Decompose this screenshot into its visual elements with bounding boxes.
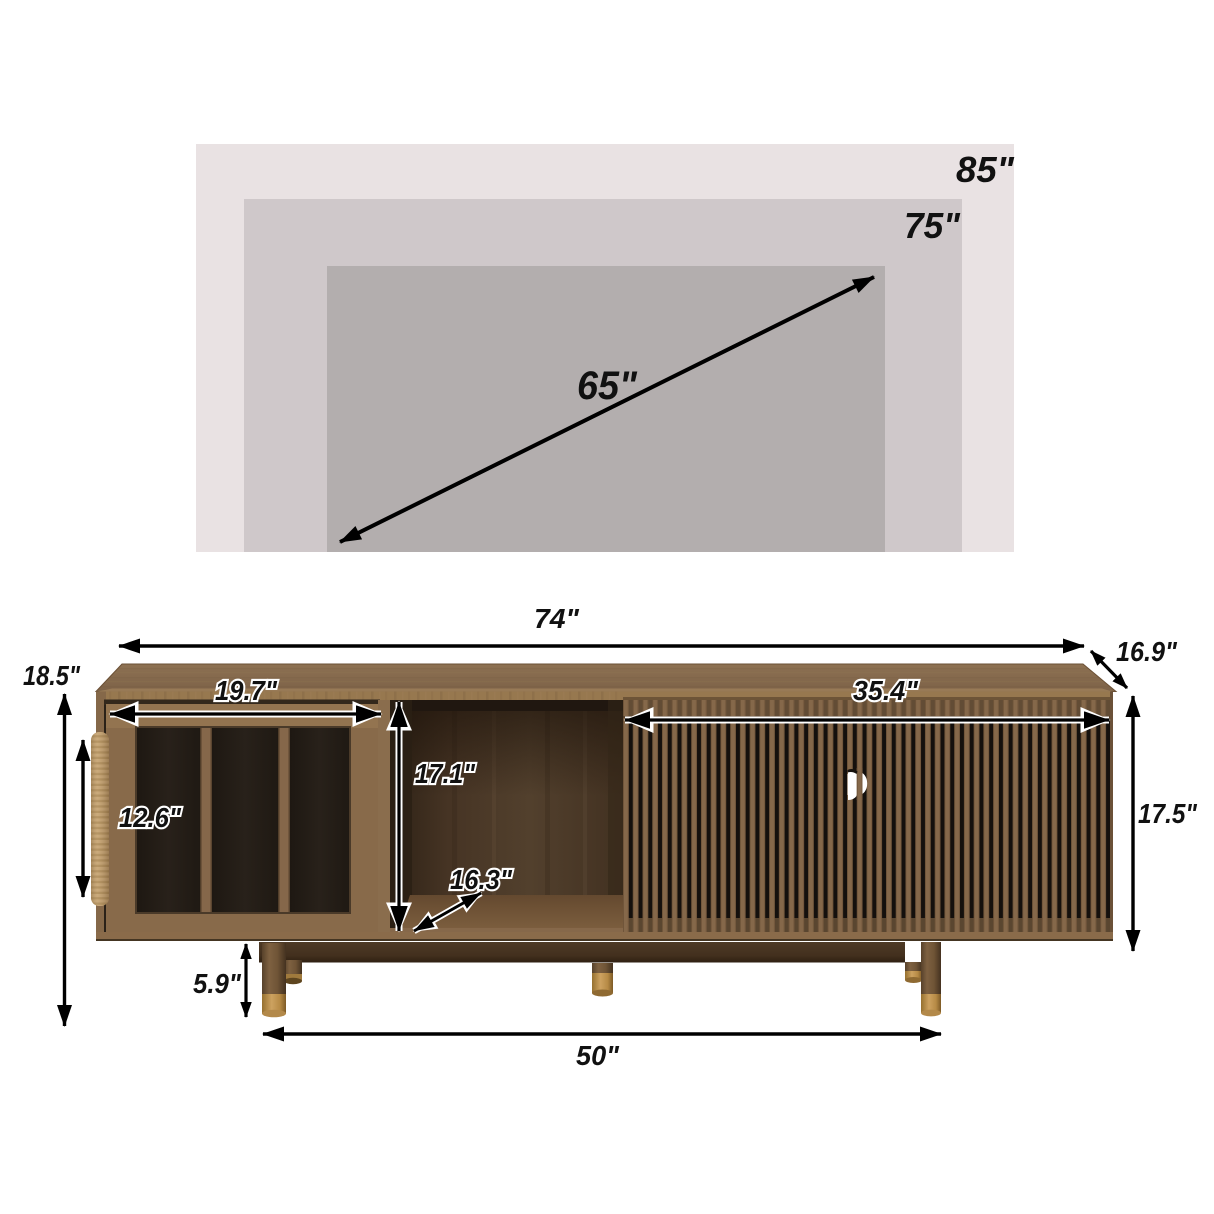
svg-text:5.9": 5.9"	[193, 968, 242, 999]
svg-text:35.4": 35.4"	[853, 675, 919, 706]
svg-text:16.9": 16.9"	[1116, 636, 1178, 667]
svg-text:50": 50"	[576, 1040, 620, 1071]
svg-text:17.5": 17.5"	[1138, 798, 1198, 829]
svg-text:75": 75"	[904, 205, 961, 246]
svg-text:17.1": 17.1"	[415, 758, 476, 789]
svg-text:16.3": 16.3"	[450, 864, 513, 895]
svg-text:74": 74"	[534, 603, 580, 634]
svg-text:18.5": 18.5"	[23, 660, 81, 691]
svg-text:12.6": 12.6"	[119, 802, 182, 833]
svg-text:19.7": 19.7"	[215, 675, 278, 706]
svg-text:65": 65"	[577, 364, 638, 408]
svg-text:85": 85"	[956, 149, 1015, 190]
